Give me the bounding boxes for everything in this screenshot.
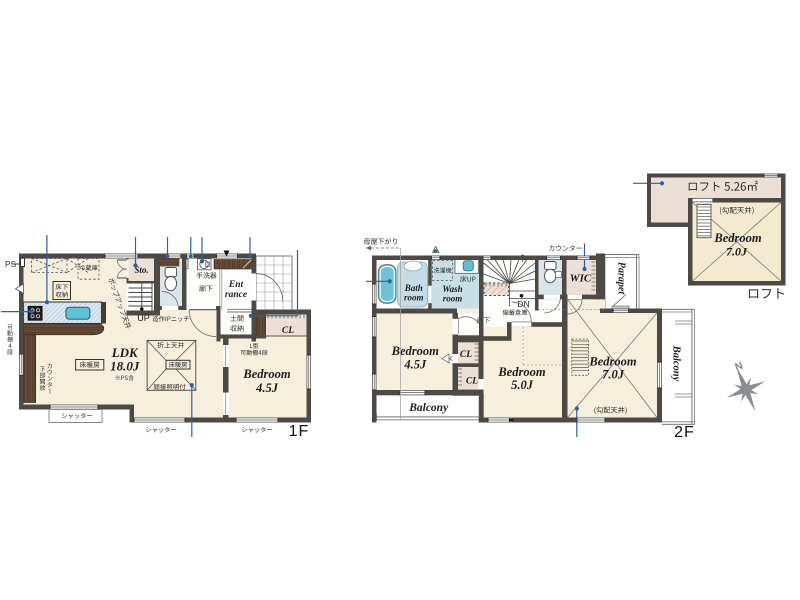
svg-text:rance: rance	[225, 290, 248, 300]
svg-text:4.5J: 4.5J	[255, 381, 279, 395]
svg-text:1F: 1F	[289, 423, 310, 440]
svg-text:UP: UP	[137, 313, 150, 323]
svg-text:Wash: Wash	[442, 284, 462, 294]
svg-text:room: room	[404, 293, 424, 303]
svg-text:Bedroom: Bedroom	[497, 365, 546, 379]
svg-text:DN: DN	[517, 299, 529, 309]
svg-text:Bedroom: Bedroom	[588, 355, 637, 369]
svg-text:Ent: Ent	[228, 280, 244, 290]
svg-text:5.0J: 5.0J	[511, 378, 534, 392]
svg-text:CL: CL	[282, 326, 294, 336]
svg-text:Bedroom: Bedroom	[391, 344, 440, 358]
svg-text:Bath: Bath	[404, 283, 423, 293]
svg-text:Parapet: Parapet	[616, 262, 627, 295]
svg-text:Balcony: Balcony	[671, 345, 682, 382]
svg-text:Bedroom: Bedroom	[242, 367, 291, 381]
svg-text:CL: CL	[460, 350, 472, 360]
svg-text:7.0J: 7.0J	[602, 368, 625, 382]
svg-text:Balcony: Balcony	[408, 402, 449, 414]
svg-text:2F: 2F	[674, 424, 695, 441]
svg-text:18.0J: 18.0J	[110, 359, 140, 374]
svg-text:7.0J: 7.0J	[726, 245, 748, 259]
svg-text:CL: CL	[466, 377, 478, 387]
svg-text:WIC: WIC	[570, 273, 592, 285]
svg-text:room: room	[443, 294, 463, 304]
svg-text:Bedroom: Bedroom	[713, 231, 762, 245]
svg-text:4.5J: 4.5J	[403, 358, 427, 372]
